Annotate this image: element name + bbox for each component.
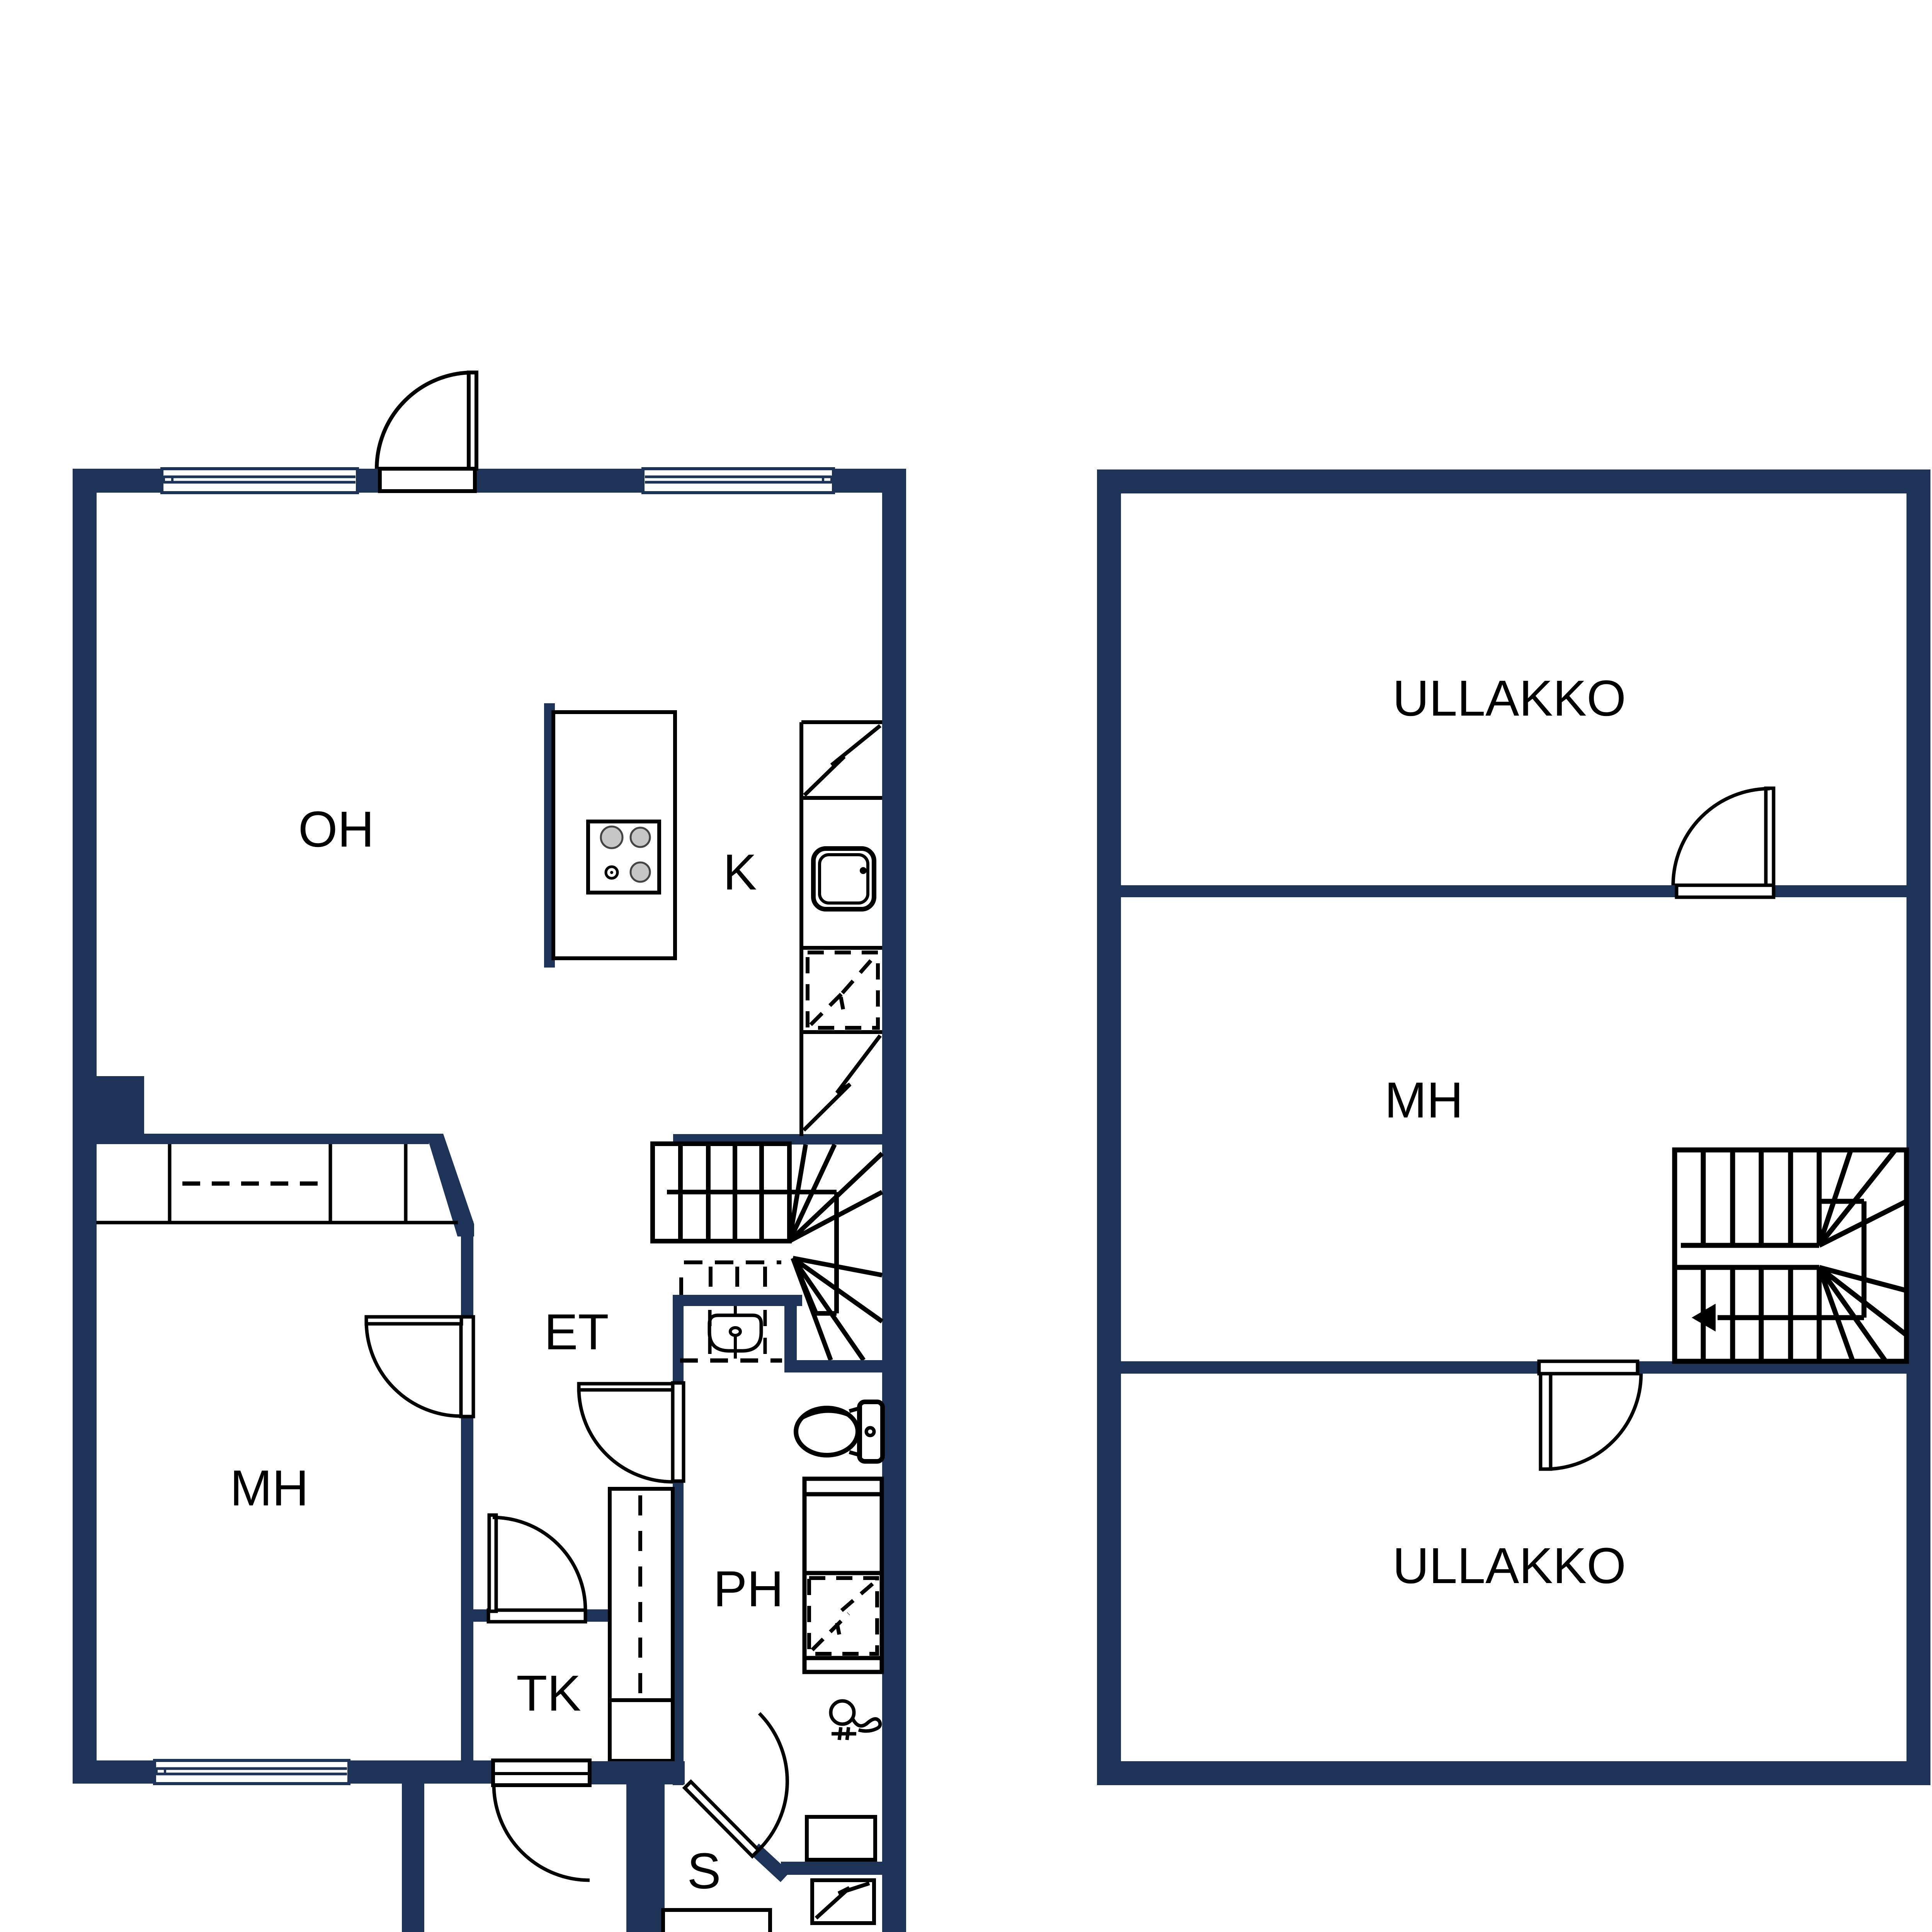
svg-text:ULLAKKO: ULLAKKO <box>1393 1537 1626 1594</box>
svg-text:MH: MH <box>230 1459 309 1516</box>
svg-text:S: S <box>687 1842 721 1899</box>
svg-text:ULLAKKO: ULLAKKO <box>1393 670 1626 726</box>
svg-text:MH: MH <box>1384 1071 1463 1128</box>
svg-text:K: K <box>723 844 757 900</box>
svg-text:PH: PH <box>713 1560 784 1617</box>
svg-text:OH: OH <box>298 801 374 857</box>
svg-text:TK: TK <box>516 1665 581 1721</box>
svg-text:ET: ET <box>544 1303 609 1360</box>
